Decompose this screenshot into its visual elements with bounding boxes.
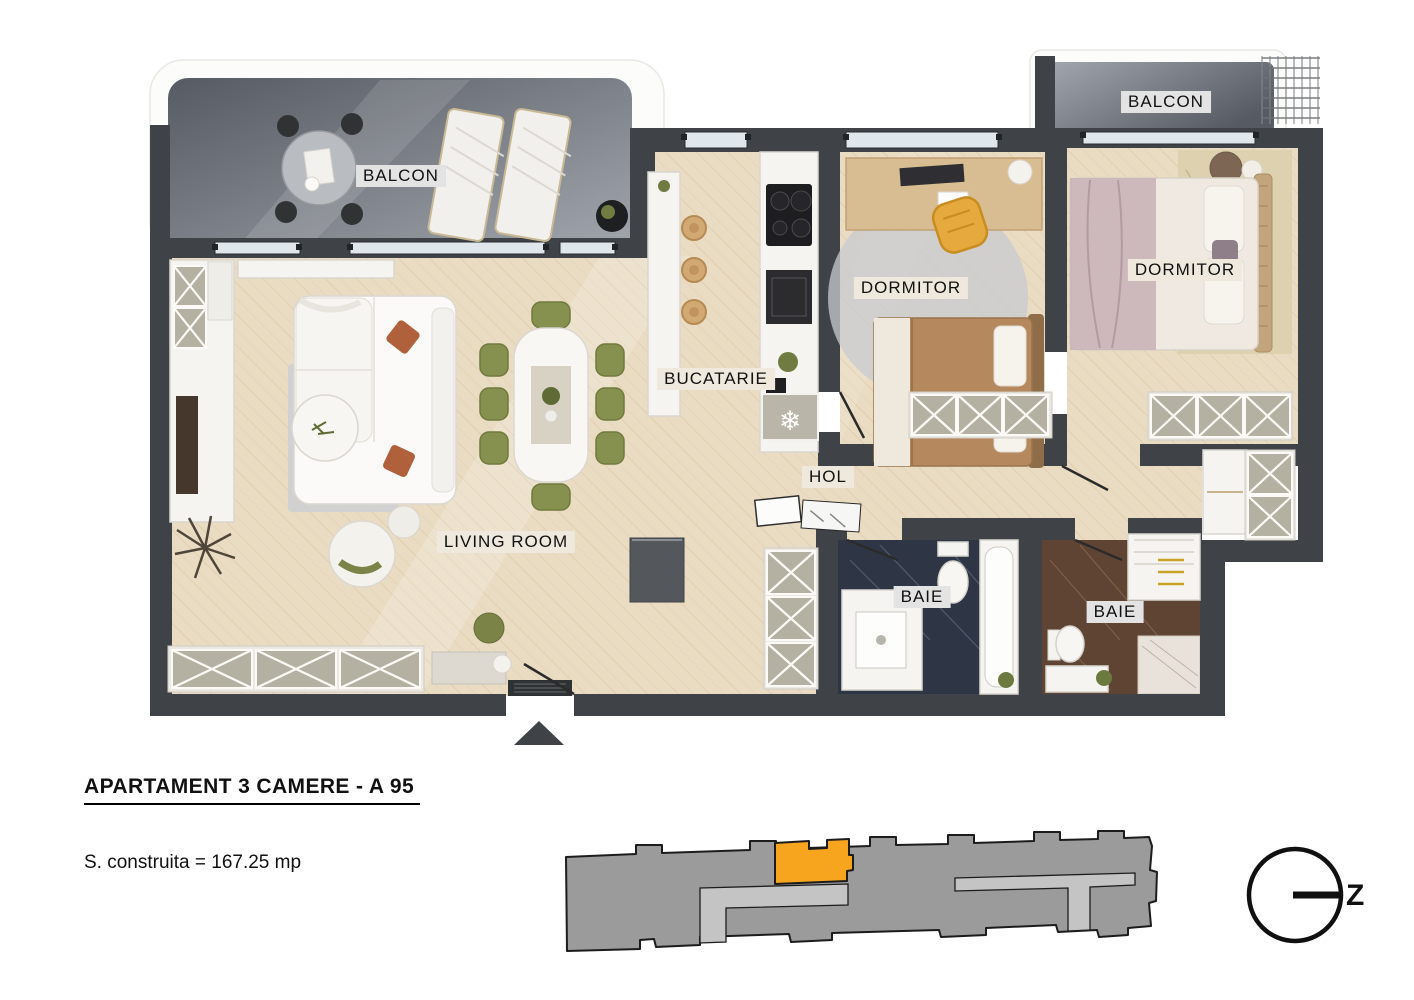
bar-stools — [682, 216, 706, 324]
compass-north-letter: Z — [1346, 879, 1364, 913]
site-highlighted-unit — [775, 839, 853, 884]
floor-plan-page: ❄ — [0, 0, 1414, 1000]
room-label-hall: HOL — [802, 466, 854, 488]
room-label-balcony-left: BALCON — [356, 165, 446, 187]
room-label-bedroom-right: DORMITOR — [1128, 259, 1242, 281]
hall-wardrobe — [764, 548, 818, 689]
tv-unit — [170, 260, 234, 522]
compass — [1249, 849, 1341, 941]
entrance-arrow-icon — [514, 721, 564, 745]
room-label-bathroom-left: BAIE — [894, 586, 951, 608]
built-area-text: S. construita = 167.25 mp — [84, 852, 301, 874]
fridge: ❄ — [762, 394, 818, 440]
living-wardrobe — [168, 646, 424, 692]
room-label-bathroom-right: BAIE — [1087, 601, 1144, 623]
coffee-table — [292, 395, 358, 461]
room-label-kitchen: BUCATARIE — [657, 368, 775, 390]
floor-plan-drawing: ❄ — [0, 0, 1414, 1000]
room-label-living-room: LIVING ROOM — [437, 531, 575, 553]
balcony-left — [150, 60, 664, 256]
site-plan — [566, 831, 1157, 951]
bedroom-left-wardrobe — [909, 392, 1052, 438]
window-sideboard — [238, 260, 394, 278]
apartment-title: APARTAMENT 3 CAMERE - A 95 — [84, 775, 420, 805]
fridge-icon: ❄ — [779, 406, 802, 437]
balcony-plant — [596, 200, 628, 232]
room-label-bedroom-left: DORMITOR — [854, 277, 968, 299]
bed-left — [874, 314, 1044, 468]
room-label-balcony-right: BALCON — [1121, 91, 1211, 113]
column — [630, 538, 684, 602]
